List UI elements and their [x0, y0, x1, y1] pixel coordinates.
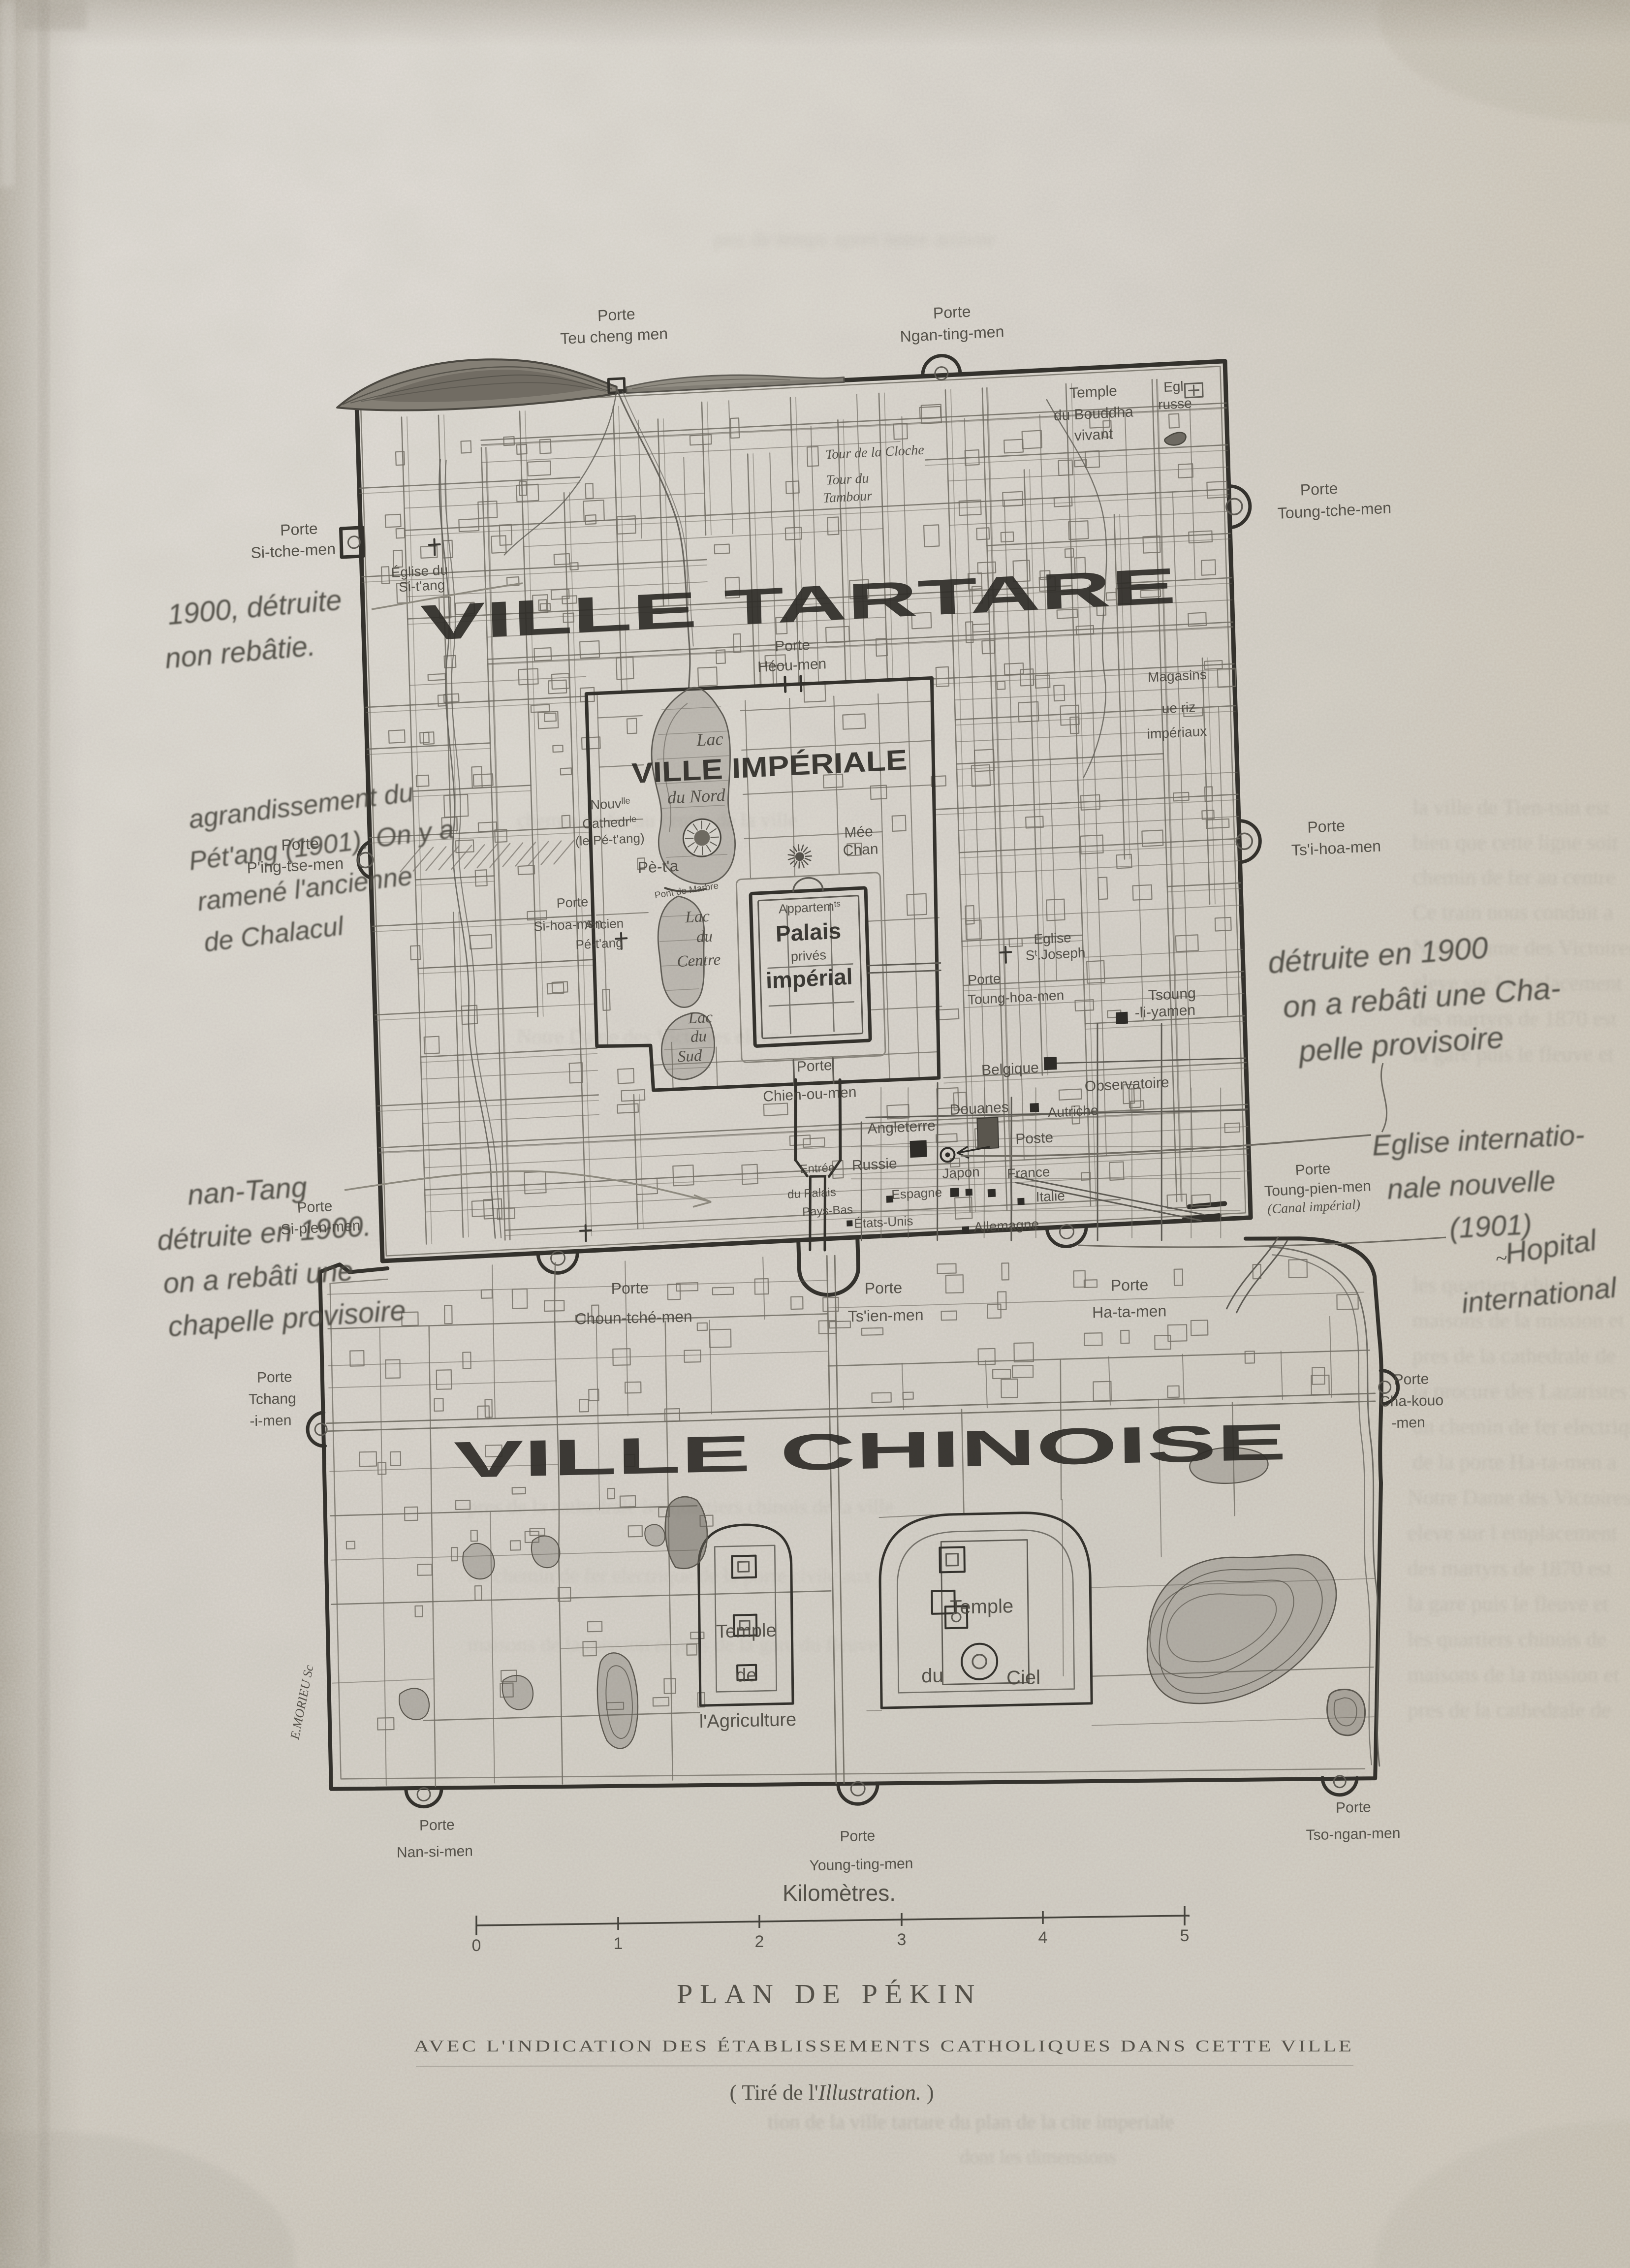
svg-text:Porte: Porte: [611, 1279, 649, 1297]
svg-text:Chan: Chan: [843, 841, 878, 859]
svg-text:Notre Dame des Victoires: Notre Dame des Victoires: [1408, 1485, 1630, 1510]
svg-text:eleve sur l emplacement: eleve sur l emplacement: [1408, 1521, 1617, 1545]
svg-text:de la porte Ha-ta-men a: de la porte Ha-ta-men a: [1412, 1450, 1617, 1474]
svg-text:Lac: Lac: [685, 908, 710, 927]
svg-text:Autriche: Autriche: [1047, 1102, 1098, 1120]
svg-text:un chemin de fer electrique de: un chemin de fer electrique de la porte …: [468, 1565, 872, 1587]
svg-text:St.Joseph: St.Joseph: [1025, 945, 1086, 963]
svg-text:du: du: [921, 1665, 943, 1687]
svg-text:Lac: Lac: [688, 1008, 713, 1028]
svg-text:chemin de fer au centre de la: chemin de fer au centre de la ville: [517, 809, 797, 832]
svg-text:les quartiers chinois de: les quartiers chinois de: [1408, 1627, 1606, 1651]
svg-text:Porte: Porte: [968, 971, 1001, 987]
svg-text:Porte: Porte: [1111, 1276, 1149, 1294]
svg-text:du Palais: du Palais: [787, 1186, 837, 1201]
svg-text:Italie: Italie: [1035, 1188, 1065, 1205]
svg-text:Palais: Palais: [775, 918, 841, 947]
svg-text:Temple: Temple: [950, 1595, 1013, 1618]
svg-text:Tambour: Tambour: [823, 488, 873, 506]
svg-text:Porte: Porte: [840, 1827, 875, 1845]
svg-text:Héou-men: Héou-men: [757, 656, 827, 675]
svg-text:Porte: Porte: [419, 1817, 455, 1834]
svg-text:Egl: Egl: [1163, 378, 1184, 395]
svg-text:5: 5: [1180, 1926, 1190, 1945]
svg-text:Pays-Bas: Pays-Bas: [802, 1203, 853, 1219]
svg-text:la ville de Tien-tsin est: la ville de Tien-tsin est: [1412, 795, 1610, 819]
svg-text:Nan-si-men: Nan-si-men: [397, 1843, 473, 1860]
svg-text:Mée: Mée: [844, 823, 873, 841]
svg-text:Porte: Porte: [865, 1279, 903, 1297]
svg-text:tion de la ville tartare du pl: tion de la ville tartare du plan de la c…: [768, 2111, 1174, 2134]
svg-text:Pè-t'a: Pè-t'a: [637, 857, 679, 877]
svg-text:impériaux: impériaux: [1147, 724, 1207, 742]
svg-text:Tso-ngan-men: Tso-ngan-men: [1306, 1825, 1400, 1843]
svg-text:Eglise: Eglise: [1034, 930, 1071, 947]
svg-text:Magasins: Magasins: [1148, 667, 1207, 685]
svg-text:Porte: Porte: [1336, 1799, 1371, 1816]
svg-text:Lac: Lac: [696, 729, 723, 750]
svg-text:Ha-ta-men: Ha-ta-men: [1092, 1302, 1167, 1321]
svg-text:PLAN DE PÉKIN: PLAN DE PÉKIN: [677, 1979, 982, 2010]
svg-text:maisons de la mission et pres: maisons de la mission et pres de la gare…: [468, 1634, 878, 1656]
svg-text:Porte: Porte: [796, 1057, 832, 1075]
svg-text:3: 3: [897, 1930, 907, 1949]
svg-text:dont les dimensions: dont les dimensions: [960, 2145, 1116, 2168]
svg-text:Pé-t'ang: Pé-t'ang: [575, 935, 623, 952]
svg-text:du Nord: du Nord: [667, 785, 726, 808]
svg-text:AVEC L'INDICATION DES ÉTABLISS: AVEC L'INDICATION DES ÉTABLISSEMENTS CAT…: [414, 2037, 1354, 2055]
svg-text:Russie: Russie: [852, 1156, 898, 1174]
svg-text:0: 0: [472, 1936, 481, 1955]
svg-text:Porte: Porte: [933, 302, 971, 322]
svg-text:Tsoung: Tsoung: [1148, 985, 1196, 1004]
svg-text:pres de la cathedrale de: pres de la cathedrale de: [1412, 1344, 1616, 1368]
svg-text:Tour du: Tour du: [826, 471, 869, 488]
svg-text:Porte: Porte: [280, 519, 318, 539]
svg-text:Notre Dame des Victoires eleve: Notre Dame des Victoires eleve: [517, 1026, 779, 1048]
svg-text:de: de: [736, 1665, 757, 1686]
svg-text:Porte: Porte: [1307, 817, 1346, 836]
svg-text:Centre: Centre: [677, 951, 721, 971]
svg-text:Porte: Porte: [597, 305, 636, 325]
svg-text:Si-t'ang: Si-t'ang: [399, 577, 445, 595]
svg-text:impérial: impérial: [765, 963, 853, 993]
svg-text:Porte: Porte: [1295, 1161, 1331, 1179]
svg-text:privés: privés: [790, 947, 826, 964]
svg-text:Cha-kouo: Cha-kouo: [1379, 1392, 1443, 1410]
svg-text:France: France: [1007, 1164, 1050, 1181]
svg-text:des martyrs de 1870 est: des martyrs de 1870 est: [1408, 1556, 1612, 1580]
svg-text:Espagne: Espagne: [891, 1185, 942, 1202]
svg-text:Belgique: Belgique: [981, 1060, 1039, 1079]
svg-text:Tchang: Tchang: [249, 1390, 296, 1408]
svg-text:1: 1: [614, 1934, 623, 1953]
svg-text:Porte: Porte: [297, 1198, 333, 1216]
svg-text:chemin de fer au centre: chemin de fer au centre: [1412, 865, 1616, 889]
svg-text:Ce train nous conduit a: Ce train nous conduit a: [1412, 900, 1613, 924]
svg-text:Porte: Porte: [257, 1369, 292, 1386]
svg-text:Ts'ien-men: Ts'ien-men: [848, 1306, 924, 1325]
svg-text:l'Agriculture: l'Agriculture: [699, 1709, 797, 1732]
svg-text:4: 4: [1038, 1928, 1048, 1947]
svg-text:Appartemts: Appartemts: [779, 898, 841, 916]
svg-text:la gare puis le fleuve et: la gare puis le fleuve et: [1408, 1592, 1609, 1616]
svg-text:ue riz: ue riz: [1161, 699, 1195, 716]
svg-text:Young-ting-men: Young-ting-men: [809, 1856, 913, 1874]
svg-text:un chemin de fer electrique: un chemin de fer electrique: [1412, 1415, 1630, 1439]
svg-text:maisons de la mission et: maisons de la mission et: [1408, 1663, 1619, 1687]
svg-text:États-Unis: États-Unis: [854, 1213, 913, 1231]
svg-text:pres de la cathedrale de: pres de la cathedrale de: [1408, 1698, 1611, 1722]
svg-text:peu de temps apres notre arriv: peu de temps apres notre arrivee: [714, 227, 995, 251]
svg-text:Ancien: Ancien: [584, 916, 624, 933]
svg-text:Ciel: Ciel: [1006, 1667, 1040, 1689]
svg-text:Choun-tché-men: Choun-tché-men: [575, 1307, 692, 1327]
svg-text:du: du: [696, 928, 713, 946]
svg-text:2: 2: [755, 1932, 764, 1951]
svg-text:Allemagne: Allemagne: [973, 1216, 1039, 1235]
svg-text:-li-yamen: -li-yamen: [1134, 1002, 1195, 1021]
svg-text:Japon: Japon: [942, 1164, 980, 1181]
svg-text:Entrée: Entrée: [800, 1161, 835, 1176]
svg-text:la procure des Lazaristes: la procure des Lazaristes: [1412, 1379, 1627, 1403]
svg-text:Porte: Porte: [775, 637, 811, 655]
svg-text:-i-men: -i-men: [250, 1412, 291, 1429]
svg-text:( Tiré de l'Illustration. ): ( Tiré de l'Illustration. ): [730, 2080, 934, 2105]
svg-text:Temple: Temple: [1069, 383, 1118, 402]
svg-text:Porte: Porte: [1393, 1371, 1429, 1388]
svg-text:Porte: Porte: [556, 894, 588, 911]
svg-text:Kilomètres.: Kilomètres.: [783, 1880, 896, 1906]
svg-text:pres de la cathedrale les quar: pres de la cathedrale les quartiers chin…: [468, 1496, 894, 1518]
svg-text:Poste: Poste: [1015, 1130, 1054, 1148]
svg-text:Sud: Sud: [677, 1047, 702, 1066]
svg-text:Douanes: Douanes: [949, 1099, 1009, 1118]
svg-text:bien que cette ligne soit: bien que cette ligne soit: [1412, 830, 1618, 854]
svg-text:-men: -men: [1391, 1415, 1425, 1431]
svg-text:vivant: vivant: [1074, 426, 1113, 444]
svg-text:Porte: Porte: [1300, 479, 1338, 499]
svg-text:russe: russe: [1158, 395, 1192, 412]
svg-text:Angleterre: Angleterre: [867, 1118, 936, 1137]
